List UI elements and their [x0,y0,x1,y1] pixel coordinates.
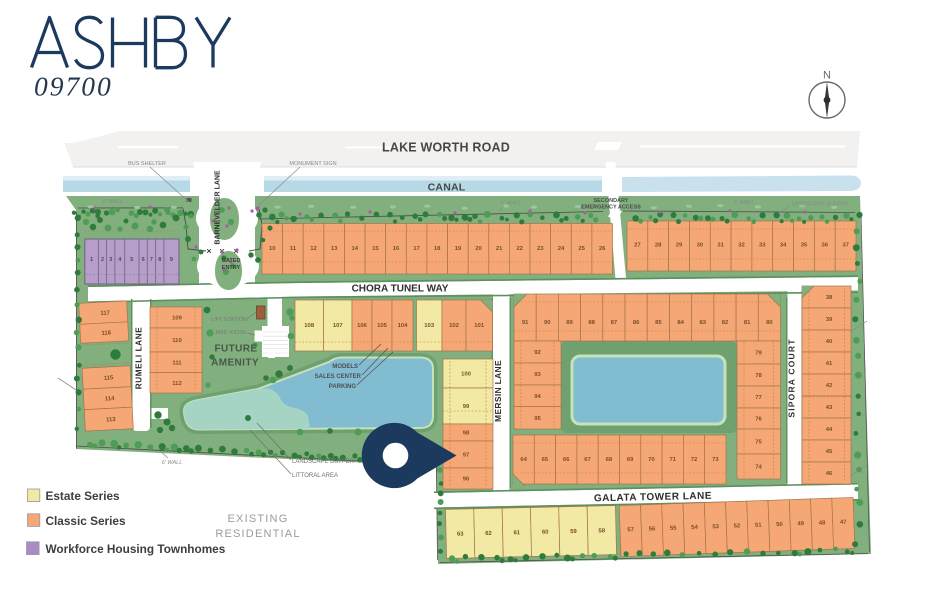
svg-text:28: 28 [655,243,662,249]
svg-text:41: 41 [826,361,833,367]
svg-text:4: 4 [118,257,121,263]
svg-text:6' WALL: 6' WALL [734,200,755,206]
svg-text:36: 36 [822,243,829,249]
svg-text:BARNEVELDER LANE: BARNEVELDER LANE [215,170,222,245]
svg-text:46: 46 [826,471,833,477]
svg-text:62: 62 [485,531,492,537]
svg-text:Classic Series: Classic Series [46,514,126,528]
svg-text:85: 85 [655,320,662,326]
svg-text:48: 48 [819,520,826,526]
svg-text:09700: 09700 [34,71,113,102]
svg-text:117: 117 [100,310,111,317]
svg-text:BUS SHELTER: BUS SHELTER [128,161,166,167]
svg-text:104: 104 [398,323,409,329]
svg-text:102: 102 [449,323,460,329]
svg-text:101: 101 [474,323,485,329]
svg-text:GATED: GATED [222,258,241,264]
svg-text:23: 23 [537,246,544,252]
svg-text:90: 90 [544,320,551,326]
svg-text:34: 34 [780,243,787,249]
svg-text:25: 25 [578,246,585,252]
svg-text:43: 43 [826,405,833,411]
svg-text:93: 93 [534,372,541,378]
svg-text:22: 22 [516,246,523,252]
svg-text:6' WALL: 6' WALL [501,201,522,207]
svg-text:39: 39 [826,317,833,323]
svg-text:81: 81 [744,320,751,326]
svg-text:LIFT STATION: LIFT STATION [211,317,247,323]
svg-text:14: 14 [352,246,359,252]
svg-text:49: 49 [797,521,804,527]
svg-text:21: 21 [496,246,503,252]
svg-text:7: 7 [150,257,153,263]
svg-text:54: 54 [691,525,698,531]
svg-text:99: 99 [463,404,470,410]
svg-text:31: 31 [717,243,724,249]
svg-text:35: 35 [801,243,808,249]
svg-text:6: 6 [142,257,145,263]
svg-text:17: 17 [413,246,420,252]
svg-text:32: 32 [738,243,745,249]
svg-text:111: 111 [172,360,182,366]
svg-text:ENTRY: ENTRY [222,265,241,271]
svg-text:87: 87 [611,320,618,326]
svg-text:20: 20 [475,246,482,252]
svg-text:57: 57 [627,527,634,533]
svg-text:37: 37 [842,243,849,249]
svg-text:92: 92 [534,350,541,356]
svg-text:89: 89 [566,320,573,326]
svg-text:53: 53 [712,524,719,530]
svg-text:80: 80 [766,320,773,326]
svg-text:MONUMENT SIGN: MONUMENT SIGN [289,161,336,167]
svg-text:18: 18 [434,246,441,252]
svg-text:96: 96 [463,477,470,483]
svg-text:16: 16 [393,246,400,252]
svg-text:SALES CENTER: SALES CENTER [315,374,362,380]
svg-text:12: 12 [310,246,317,252]
svg-text:LANDSCAPE BUFFER: LANDSCAPE BUFFER [292,459,355,465]
svg-text:5: 5 [130,257,133,263]
svg-text:59: 59 [570,529,577,535]
svg-text:91: 91 [522,320,529,326]
svg-text:60: 60 [542,530,549,536]
svg-text:63: 63 [457,532,464,538]
svg-text:EXISTING: EXISTING [228,513,289,525]
svg-text:33: 33 [759,243,766,249]
svg-text:LANDSCAPE BUFFER: LANDSCAPE BUFFER [792,202,849,208]
svg-text:58: 58 [598,528,605,534]
svg-text:68: 68 [606,457,613,463]
svg-text:N: N [823,70,831,82]
svg-text:Estate Series: Estate Series [46,489,121,503]
svg-text:97: 97 [463,453,470,459]
svg-text:38: 38 [826,295,833,301]
svg-text:40: 40 [826,339,833,345]
svg-text:94: 94 [534,394,541,400]
svg-text:67: 67 [584,457,591,463]
svg-text:Workforce Housing Townhomes: Workforce Housing Townhomes [46,542,226,556]
svg-text:112: 112 [172,381,182,387]
svg-text:19: 19 [455,246,462,252]
svg-text:69: 69 [627,457,634,463]
svg-text:MODELS: MODELS [332,364,358,370]
svg-text:105: 105 [377,323,388,329]
svg-text:103: 103 [424,323,435,329]
svg-text:72: 72 [691,457,698,463]
svg-text:95: 95 [534,416,541,422]
svg-text:115: 115 [104,375,115,382]
svg-text:42: 42 [826,383,833,389]
svg-text:78: 78 [755,373,762,379]
svg-text:79: 79 [755,351,762,357]
svg-text:88: 88 [588,320,595,326]
svg-text:50: 50 [776,522,783,528]
svg-text:56: 56 [649,526,656,532]
svg-text:3: 3 [109,257,112,263]
svg-text:98: 98 [463,431,470,437]
svg-text:66: 66 [563,457,570,463]
svg-text:11: 11 [290,246,297,252]
svg-text:CANAL: CANAL [428,182,466,194]
svg-text:FUTURE: FUTURE [215,344,258,355]
svg-text:47: 47 [840,520,847,526]
svg-text:RUMELI LANE: RUMELI LANE [135,327,144,390]
svg-text:9: 9 [170,257,173,263]
svg-text:77: 77 [755,395,762,401]
svg-text:76: 76 [755,417,762,423]
svg-text:100: 100 [461,372,472,378]
svg-text:26: 26 [599,246,606,252]
svg-text:55: 55 [670,526,677,532]
svg-text:15: 15 [372,246,379,252]
svg-text:13: 13 [331,246,338,252]
svg-text:52: 52 [734,523,741,529]
svg-text:RESIDENTIAL: RESIDENTIAL [215,528,300,540]
svg-text:SIPORA COURT: SIPORA COURT [787,338,797,417]
svg-text:AMENITY: AMENITY [211,358,259,369]
svg-text:LITTORAL AREA: LITTORAL AREA [292,473,338,479]
svg-text:6' WALL: 6' WALL [162,460,183,466]
svg-text:106: 106 [357,323,368,329]
svg-text:113: 113 [106,417,117,424]
svg-text:MAIL KIOSK: MAIL KIOSK [216,330,247,336]
svg-text:84: 84 [677,320,684,326]
svg-text:73: 73 [712,457,719,463]
svg-text:29: 29 [676,243,683,249]
svg-text:51: 51 [755,523,762,529]
svg-text:70: 70 [648,457,655,463]
svg-text:EMERGENCY ACCESS: EMERGENCY ACCESS [581,205,641,211]
svg-text:109: 109 [172,316,183,322]
svg-text:82: 82 [722,320,729,326]
svg-text:1: 1 [90,257,93,263]
svg-text:8: 8 [158,257,161,263]
svg-text:6' WALL: 6' WALL [103,199,124,205]
svg-text:44: 44 [826,427,833,433]
svg-text:108: 108 [304,323,315,329]
svg-text:27: 27 [634,243,641,249]
svg-text:45: 45 [826,449,833,455]
svg-text:86: 86 [633,320,640,326]
svg-text:10: 10 [269,246,276,252]
svg-text:SECONDARY: SECONDARY [594,198,629,204]
svg-text:65: 65 [542,457,549,463]
svg-text:LAKE WORTH ROAD: LAKE WORTH ROAD [382,141,510,155]
svg-text:2: 2 [101,257,104,263]
svg-text:64: 64 [520,457,527,463]
svg-text:71: 71 [670,457,677,463]
svg-text:CHORA TUNEL WAY: CHORA TUNEL WAY [352,284,449,295]
svg-text:30: 30 [697,243,704,249]
svg-text:107: 107 [333,323,344,329]
svg-text:PARKING: PARKING [329,384,357,390]
svg-text:75: 75 [755,440,762,446]
svg-text:110: 110 [172,338,182,344]
svg-text:83: 83 [700,320,707,326]
svg-text:MERSIN LANE: MERSIN LANE [493,360,503,422]
svg-text:114: 114 [105,396,116,403]
svg-text:61: 61 [513,530,520,536]
svg-text:74: 74 [755,465,762,471]
svg-text:116: 116 [101,330,112,337]
svg-text:24: 24 [558,246,565,252]
